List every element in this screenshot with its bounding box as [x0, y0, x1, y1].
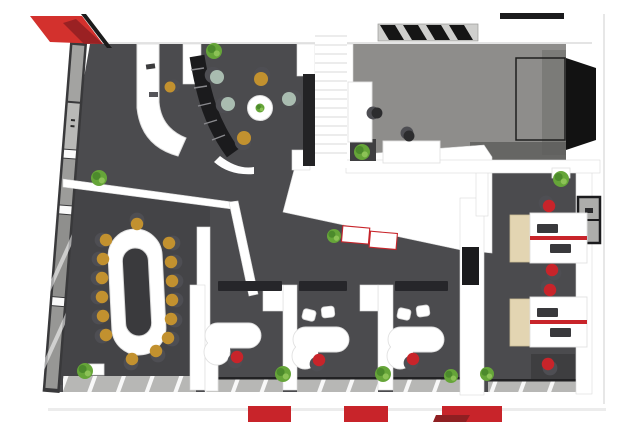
reception-desk-keyboard	[149, 92, 158, 97]
stair-shaft-dark	[303, 74, 315, 166]
office2-door-stub	[360, 285, 378, 311]
office3-right-wall	[460, 198, 484, 395]
wing-left-wall	[476, 170, 488, 216]
skylight	[378, 24, 478, 41]
door-mats	[218, 281, 448, 291]
corridor-black-door	[462, 247, 479, 285]
bottom-wall	[48, 392, 606, 410]
meeting-room-desk	[383, 141, 440, 163]
office1-left-wall	[190, 285, 205, 390]
floor-plan-render	[0, 0, 620, 434]
top-wall-black-strip	[500, 13, 564, 19]
floor-plan-svg	[0, 0, 620, 434]
wing-workstation-2	[510, 297, 587, 347]
entrance-mat-shadow	[433, 415, 470, 422]
stair-landing	[302, 14, 348, 27]
black-wall-panel	[566, 58, 596, 150]
conference-table	[107, 228, 168, 357]
wing-workstation-1	[510, 213, 587, 263]
stair-flight	[315, 26, 347, 168]
lounge-pier-right	[297, 44, 315, 76]
bottom-wall-shadow	[48, 408, 606, 411]
right-wall-edge	[603, 14, 605, 404]
